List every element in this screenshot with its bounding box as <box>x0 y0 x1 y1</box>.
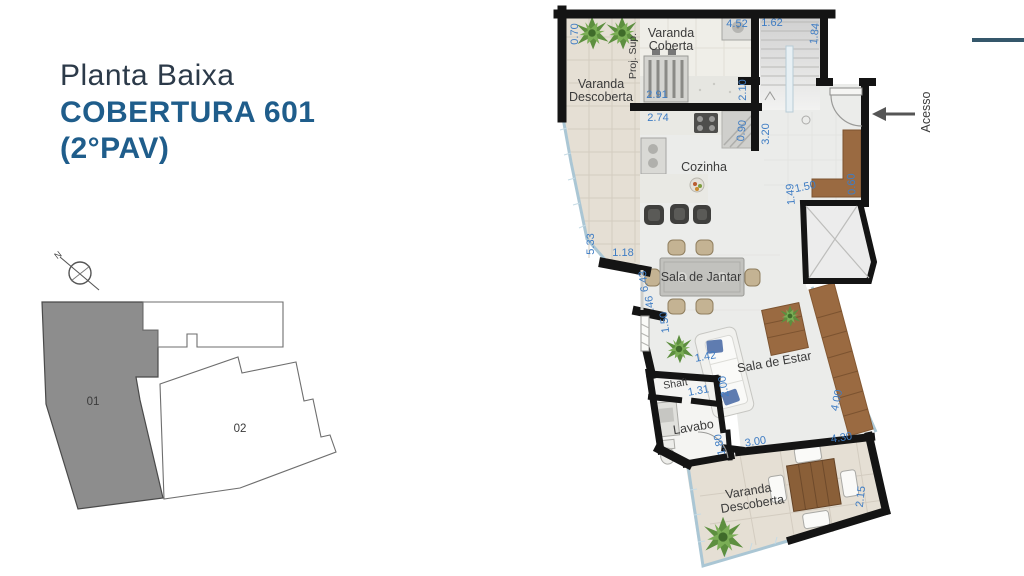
keyplan-unit1-label: 01 <box>87 396 100 408</box>
dimension-label: 2.10 <box>737 79 749 100</box>
room-label-varanda-descoberta-top-2: Descoberta <box>569 90 633 104</box>
dimension-label: 1.18 <box>612 247 633 259</box>
north-compass-icon: N <box>52 249 99 290</box>
elevator-shaft <box>803 203 874 281</box>
dimension-label: .46 <box>643 295 657 312</box>
access-label: Acesso <box>919 91 933 132</box>
dimension-label: 1.84 <box>808 22 822 45</box>
stove <box>694 113 718 133</box>
keyplan-unit2-label: 02 <box>234 423 247 435</box>
room-label-cozinha: Cozinha <box>681 160 727 174</box>
kitchen-sink <box>641 138 666 174</box>
bar-stools <box>644 204 711 225</box>
keyplan: 01 02 N <box>42 249 336 509</box>
dimension-label: 4.52 <box>726 18 747 30</box>
dimension-label: 0.70 <box>569 23 581 44</box>
floorplan-drawing: 01 02 N <box>0 0 1024 576</box>
accent-line <box>972 38 1024 42</box>
room-label-sala-de-jantar: Sala de Jantar <box>661 270 742 284</box>
dimension-label: 5.33 <box>585 233 597 254</box>
dimension-label: 0.60 <box>845 173 858 195</box>
window-icon <box>641 316 649 351</box>
dimension-label: 0.90 <box>735 119 749 142</box>
keyplan-unit2-shape <box>160 357 336 499</box>
dimension-label: 2.74 <box>647 112 668 124</box>
fruit-bowl <box>690 178 704 192</box>
room-label-proj-sup: Proj. Sup. <box>627 33 639 79</box>
keyplan-unit1-shape <box>42 302 163 509</box>
dimension-label: 1.62 <box>761 17 782 29</box>
room-label-varanda-descoberta-top: Varanda <box>578 77 624 91</box>
dimension-label: 3.20 <box>760 123 772 144</box>
page: Planta Baixa COBERTURA 601 (2°PAV) 01 02 <box>0 0 1024 576</box>
dimension-label: 2.91 <box>646 89 667 101</box>
room-label-varanda-coberta-2: Coberta <box>649 39 694 53</box>
keyplan-upper-bar-shape <box>143 302 283 347</box>
room-label-varanda-coberta: Varanda <box>648 26 694 40</box>
access-arrow-icon <box>872 107 915 121</box>
